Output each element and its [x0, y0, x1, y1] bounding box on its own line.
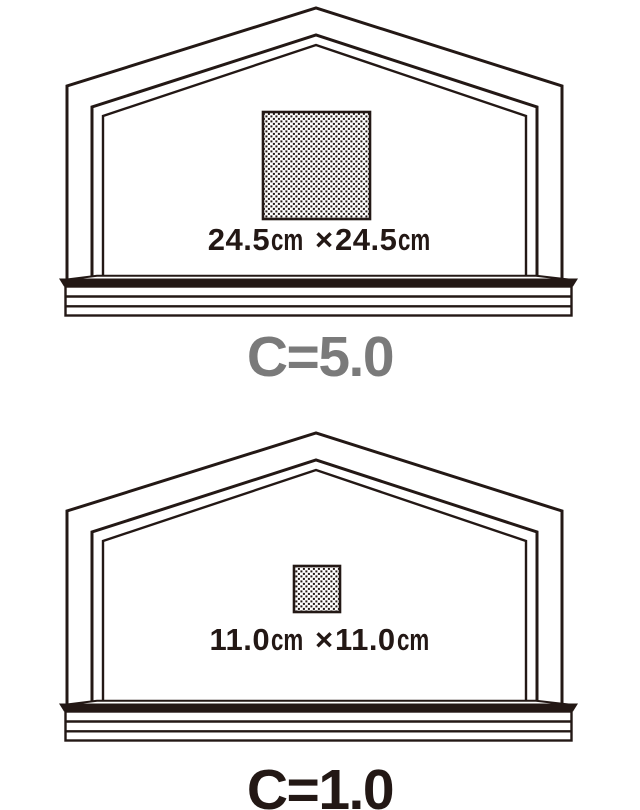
multiply-sign-c5: ×: [315, 222, 333, 257]
diagram-canvas: 24.5cm×24.5cm C=5.0 11.0cm×11.0cm C=1.0: [0, 0, 640, 810]
dimension-height-unit-c1: cm: [397, 624, 429, 656]
caption-c1: C=1.0: [0, 761, 640, 810]
dimension-width-value-c5: 24.5: [208, 222, 270, 257]
dimension-width-unit-c5: cm: [271, 224, 303, 256]
dimension-label-c1: 11.0cm×11.0cm: [0, 624, 640, 656]
house-diagrams-svg: [0, 0, 640, 810]
dimension-height-unit-c5: cm: [398, 224, 430, 256]
heated-area-square-large: [263, 112, 370, 219]
dimension-label-c5: 24.5cm×24.5cm: [0, 224, 640, 256]
caption-c5: C=5.0: [0, 328, 640, 386]
dimension-height-value-c1: 11.0: [335, 622, 396, 657]
multiply-sign-c1: ×: [315, 622, 333, 657]
dimension-height-value-c5: 24.5: [335, 222, 397, 257]
heated-area-square-small: [294, 566, 340, 612]
dimension-width-unit-c1: cm: [271, 624, 303, 656]
dimension-width-value-c1: 11.0: [210, 622, 271, 657]
